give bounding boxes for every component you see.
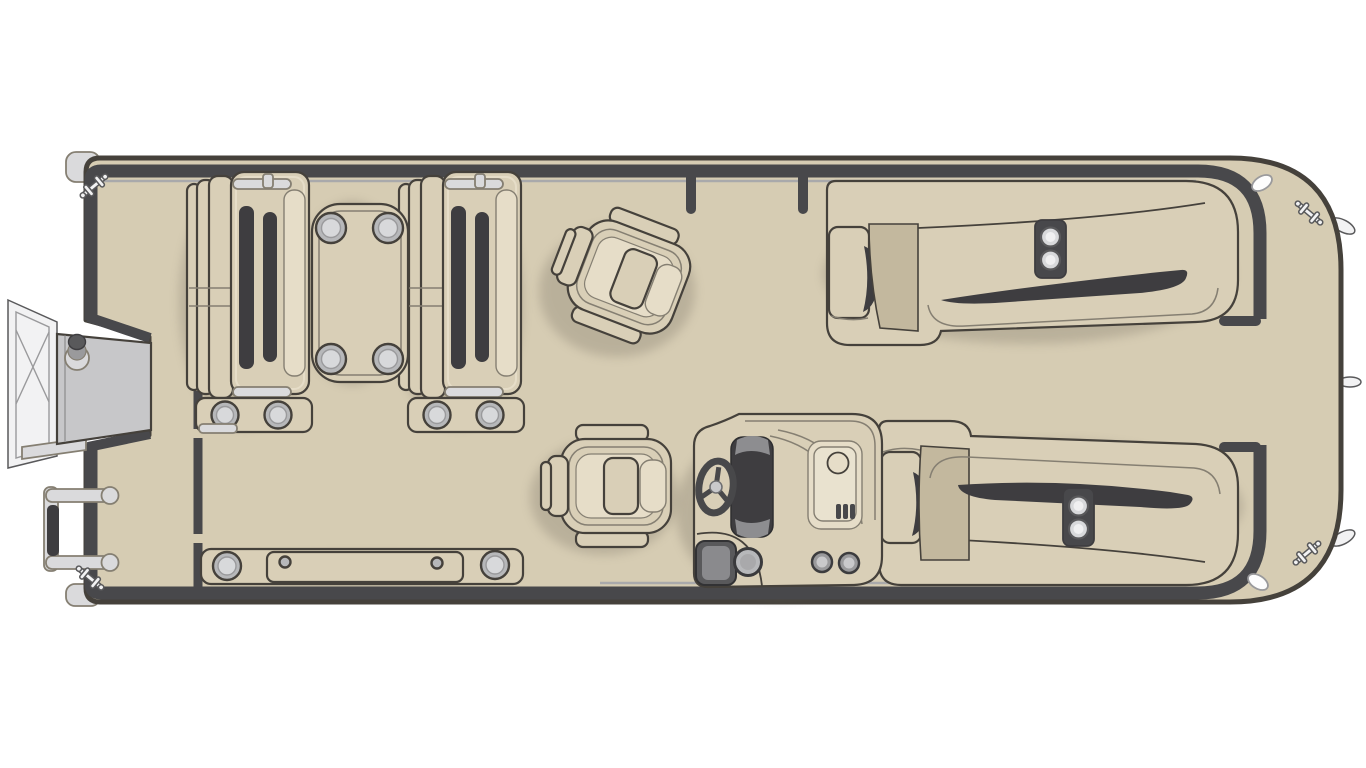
pedestal-table	[312, 204, 408, 382]
chaise-back	[919, 446, 969, 560]
canvas: Pontoon boat floor plan — top-down deck …	[0, 0, 1366, 768]
seat-bracket	[199, 424, 237, 433]
gate-post-icon	[798, 172, 808, 214]
vent-grill-icon	[836, 504, 855, 519]
faucet-icon	[828, 453, 849, 474]
bow-seat-left	[187, 172, 312, 432]
gate-post-icon	[686, 172, 696, 214]
waste-bin-icon	[696, 541, 736, 585]
helm-seat-cowl	[731, 436, 773, 538]
lounge-top	[827, 181, 1238, 345]
armrest-cupholders	[1035, 220, 1066, 278]
ladder-grip	[47, 505, 59, 556]
helm-console	[694, 414, 882, 587]
door-latch-icon	[65, 335, 89, 371]
lounge-bottom	[879, 421, 1238, 585]
bow-seat-right	[399, 172, 524, 432]
floor-storage-hatch	[201, 549, 523, 584]
armrest-cupholders	[1063, 488, 1094, 546]
chaise-cushion	[829, 227, 869, 318]
pontoon-floorplan	[0, 0, 1366, 768]
sink-unit	[808, 441, 862, 529]
